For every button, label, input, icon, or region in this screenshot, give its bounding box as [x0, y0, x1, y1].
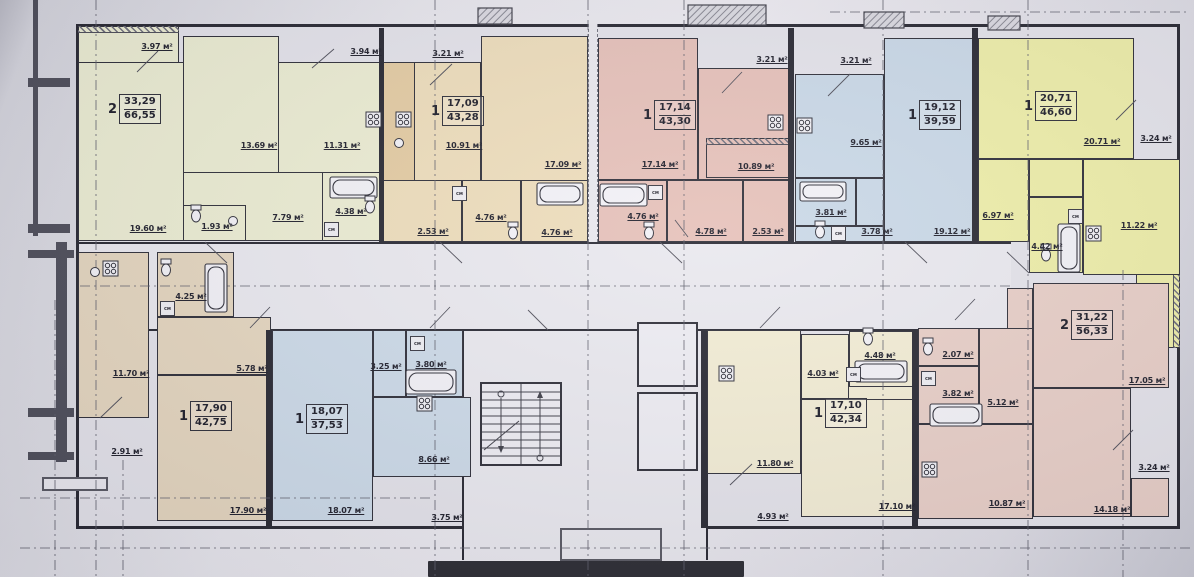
room-living-19-60	[78, 62, 184, 241]
room-bath-3-80	[406, 330, 463, 397]
room-bath-4-25	[157, 252, 234, 317]
wall	[379, 28, 384, 242]
room-storage-3-25	[373, 330, 406, 397]
room-hall-2-53a	[381, 180, 462, 242]
wall	[701, 330, 707, 528]
neighbour-stub	[28, 408, 74, 417]
room-living-17-10	[801, 399, 913, 517]
room-hall-3-78b	[856, 178, 884, 226]
room-hall-3-78	[795, 226, 884, 242]
side-porch	[42, 477, 108, 491]
room-bath-4-76b	[521, 180, 588, 242]
stairwell	[480, 382, 562, 466]
room-hall-apt5	[1029, 159, 1083, 197]
room-corridor-6-97	[978, 159, 1029, 242]
room-bath-3-81	[795, 178, 856, 226]
wall	[912, 330, 918, 528]
room-living-20-71	[978, 38, 1134, 159]
neighbour-wall	[33, 0, 38, 236]
kitchen-appliance-strip	[381, 62, 415, 181]
wall	[972, 28, 978, 242]
room-bath-4-76c	[598, 180, 667, 242]
room-kitchen-11-22	[1083, 159, 1180, 275]
room-living-17-90	[157, 375, 271, 521]
room-balcony-3-97	[78, 26, 179, 64]
neighbour-stub	[28, 250, 74, 258]
neighbour-stub	[28, 224, 70, 233]
room-hall-4-78	[667, 180, 743, 242]
room-kitchen-10-87	[918, 424, 1033, 519]
room-entry-apt9	[1007, 288, 1033, 330]
room-living-17-09	[481, 36, 588, 181]
room-bath-4-38	[322, 172, 381, 241]
room-wc-2-07	[918, 328, 979, 366]
neighbour-stub	[28, 78, 70, 87]
entrance-tambour	[560, 528, 662, 561]
room-wc-2-53b	[743, 180, 790, 242]
expansion-joint	[588, 24, 598, 242]
room-kitchen-11-70	[78, 252, 149, 418]
room-kitchen-8-66	[373, 397, 471, 477]
room-living-17-14	[598, 38, 698, 180]
room-hall-5-78	[157, 317, 271, 375]
room-living-18-07	[272, 330, 373, 521]
room-bath-4-42	[1029, 197, 1083, 273]
room-kitchen-11-31	[278, 62, 381, 174]
room-living-14-18	[1033, 388, 1131, 517]
room-kitchen-9-65	[795, 74, 884, 178]
floor-plan: 3.97 м²3.94 м²13.69 м²11.31 м²19.60 м²1.…	[0, 0, 1194, 577]
room-bath-4-76a	[462, 180, 521, 242]
wall	[266, 330, 272, 528]
elevator-shaft-1	[637, 322, 698, 387]
neighbour-stub	[28, 452, 74, 460]
room-balcony-3-21b	[706, 138, 790, 178]
room-wc-1-93	[183, 205, 246, 241]
elevator-shaft-2	[637, 392, 698, 471]
room-bath-3-82	[918, 366, 979, 424]
neighbour-wall	[56, 242, 67, 462]
room-bath-4-48	[849, 331, 913, 387]
room-bedroom-13-69	[183, 36, 279, 174]
wall	[788, 28, 794, 242]
entrance-canopy	[428, 561, 744, 577]
room-hall-4-03	[801, 334, 849, 399]
room-hall-5-12	[979, 328, 1033, 424]
room-bedroom-17-05	[1033, 283, 1169, 388]
room-kitchen-11-80	[707, 330, 801, 474]
room-living-14-18-ext	[1131, 478, 1169, 517]
room-living-19-12	[884, 38, 974, 242]
